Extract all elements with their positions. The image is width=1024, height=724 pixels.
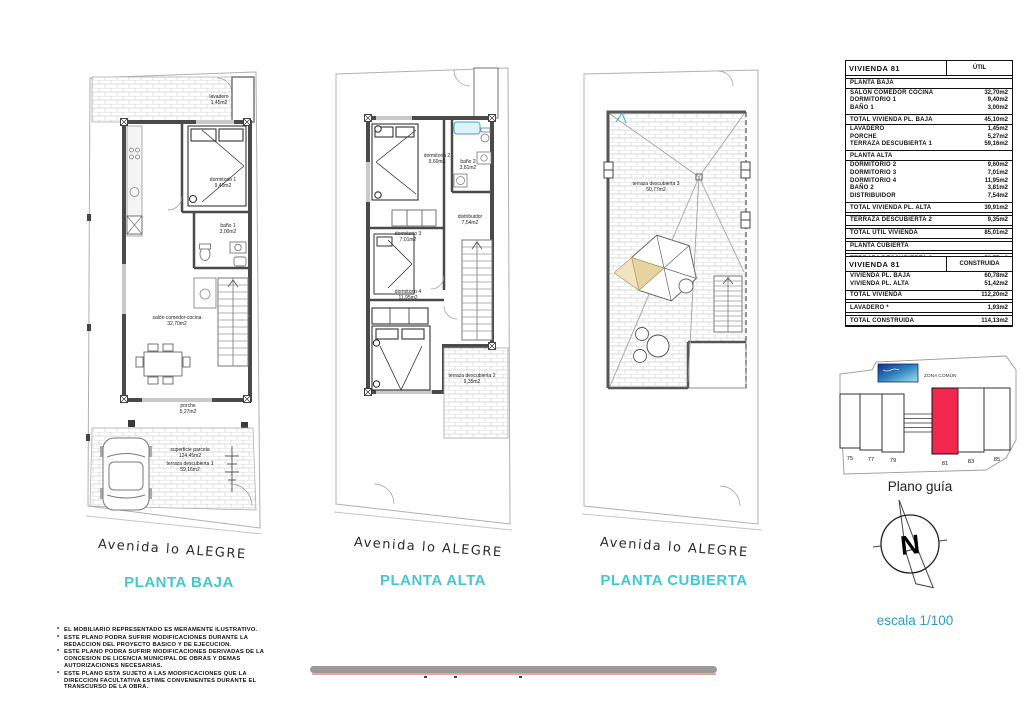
table-title: VIVIENDA 81: [846, 61, 946, 75]
room-label-dormitorio-4: dormitorio 4 11,95m2: [382, 290, 434, 301]
table-row: BAÑO 2 3,81m2: [846, 185, 1012, 193]
disclaimer-text: ESTE PLANO PODRA SUFRIR MODIFICACIONES D…: [64, 635, 271, 649]
row-label: VIVIENDA PL. ALTA: [850, 281, 909, 287]
row-value: 60,78m2: [984, 273, 1008, 279]
table-header: VIVIENDA 81 CONSTRUIDA: [846, 257, 1012, 272]
footer-mark: [454, 676, 457, 678]
footer-mark: [519, 676, 522, 678]
room-label-bano-2: baño 2 3,81m2: [446, 160, 490, 171]
row-label: TERRAZA DESCUBIERTA 2: [850, 217, 932, 223]
row-value: 59,16m2: [984, 141, 1008, 147]
disclaimer-text: ESTE PLANO PODRA SUFRIR MODIFICACIONES D…: [64, 649, 271, 669]
terrace-paving: [444, 348, 508, 438]
plot-81-highlight: [932, 388, 958, 454]
row-value: 112,20m2: [981, 292, 1008, 298]
table-row: PLANTA ALTA: [846, 150, 1012, 161]
table-body: VIVIENDA PL. BAJA 60,78m2 VIVIENDA PL. A…: [846, 272, 1012, 326]
plot-number: 85: [994, 457, 1000, 463]
street-label-alta: Avenida lo ALEGRE: [353, 535, 503, 560]
floor-plan-alta: dormitorio 2 9,60m2 baño 2 3,81m2 dormit…: [332, 62, 512, 532]
floor-plan-cubierta-drawing: [580, 62, 762, 532]
floor-title-alta: PLANTA ALTA: [348, 572, 518, 589]
row-label: PLANTA CUBIERTA: [850, 243, 909, 249]
plot-number: 79: [890, 458, 896, 464]
area-table-construida: VIVIENDA 81 CONSTRUIDA VIVIENDA PL. BAJA…: [845, 256, 1013, 327]
compass: N: [872, 500, 948, 598]
page: lavadero 1,45m2 dormitorio 1 9,40m2 baño…: [0, 0, 1024, 724]
row-label: DORMITORIO 4: [850, 178, 896, 184]
room-area: 11,95m2: [382, 296, 434, 302]
table-row: LAVADERO 1,45m2: [846, 125, 1012, 133]
row-value: 1,93m2: [988, 305, 1008, 311]
floor-title-cubierta: PLANTA CUBIERTA: [578, 572, 770, 589]
table-row: DORMITORIO 4 11,95m2: [846, 177, 1012, 185]
plot-85: [984, 388, 1010, 450]
row-label: PLANTA BAJA: [850, 80, 894, 86]
stairs-icon: [462, 240, 492, 340]
compass-north-letter: N: [899, 529, 922, 561]
row-value: 9,60m2: [988, 162, 1008, 168]
car-icon: [100, 438, 152, 510]
room-area: 59,16m2: [160, 468, 220, 474]
row-value: 85,01m2: [984, 230, 1008, 236]
room-label-lavadero: lavadero 1,45m2: [197, 95, 241, 106]
row-label: TOTAL VIVIENDA: [850, 292, 902, 298]
room-area: 124,45m2: [160, 454, 220, 460]
plot-group-left: [840, 394, 904, 452]
porch-column: [128, 420, 135, 427]
table-row: BAÑO 1 3,00m2: [846, 104, 1012, 112]
fence-post: [87, 214, 91, 221]
row-value: 9,35m2: [988, 217, 1008, 223]
footer-mark: [424, 676, 427, 678]
room-label-salon: salón comedor-cocina 32,70m2: [146, 316, 208, 327]
zona-comun-label: ZONA COMÚN: [924, 372, 957, 379]
plot-83: [958, 388, 984, 452]
room-label-porche: porche 5,27m2: [168, 404, 208, 415]
roof-notch: [688, 342, 746, 388]
table-column-header: ÚTIL: [946, 61, 1012, 75]
room-label-dormitorio-1: dormitorio 1 9,40m2: [197, 178, 249, 189]
bullet: *: [57, 635, 61, 649]
room-label-terraza-1: terraza descubierta 1 59,16m2: [160, 462, 220, 473]
table-row: TOTAL VIVIENDA PL. BAJA 45,10m2: [846, 114, 1012, 125]
row-value: 5,27m2: [988, 134, 1008, 140]
row-label: TOTAL CONSTRUIDA: [850, 318, 914, 324]
table-row: PLANTA BAJA: [846, 78, 1012, 89]
row-label: DORMITORIO 1: [850, 97, 896, 103]
room-area: 9,40m2: [197, 184, 249, 190]
bed-icon: [188, 126, 246, 206]
row-label: BAÑO 2: [850, 185, 874, 191]
room-area: 32,70m2: [146, 322, 208, 328]
row-label: TERRAZA DESCUBIERTA 1: [850, 141, 932, 147]
plot-number: 83: [968, 459, 974, 465]
row-value: 51,42m2: [984, 281, 1008, 287]
table-row: TOTAL VIVIENDA 112,20m2: [846, 290, 1012, 301]
table-row: VIVIENDA PL. ALTA 51,42m2: [846, 280, 1012, 288]
room-area: 1,45m2: [197, 101, 241, 107]
bullet: *: [57, 627, 61, 634]
room-area: 9,35m2: [444, 380, 500, 386]
compass-icon: N: [872, 500, 948, 598]
room-area: 50,77m2: [625, 188, 687, 194]
table-header: VIVIENDA 81 ÚTIL: [846, 61, 1012, 76]
area-table-util: VIVIENDA 81 ÚTIL PLANTA BAJA SALÓN COMED…: [845, 60, 1013, 278]
disclaimer-text: ESTE PLANO ESTA SUJETO A LAS MODIFICACIO…: [64, 671, 271, 691]
table-row: TERRAZA DESCUBIERTA 2 9,35m2: [846, 215, 1012, 226]
table-row: TOTAL VIVIENDA PL. ALTA 39,91m2: [846, 202, 1012, 213]
plot-number: 77: [868, 457, 874, 463]
room-area: 7,54m2: [444, 221, 496, 227]
stairs-icon: [218, 278, 248, 366]
pool-icon: [878, 364, 918, 382]
disclaimer-text: EL MOBILIARIO REPRESENTADO ES MERAMENTE …: [64, 627, 257, 634]
disclaimer-item: * ESTE PLANO ESTA SUJETO A LAS MODIFICAC…: [57, 671, 271, 691]
room-label-terraza-3: terraza descubierta 3 50,77m2: [625, 182, 687, 193]
street-label-cubierta: Avenida lo ALEGRE: [599, 535, 749, 560]
room-label-bano-1: baño 1 3,00m2: [204, 224, 252, 235]
table-row: PLANTA CUBIERTA: [846, 241, 1012, 252]
row-value: 11,95m2: [985, 178, 1008, 184]
row-value: 3,81m2: [988, 185, 1008, 191]
room-area: 3,00m2: [204, 230, 252, 236]
room-label-dormitorio-3: dormitorio 3 7,01m2: [382, 232, 434, 243]
table-row: DORMITORIO 3 7,01m2: [846, 169, 1012, 177]
room-label-parcela: superficie parcela 124,45m2: [160, 448, 220, 459]
stairwell-room: [474, 68, 498, 118]
row-value: 7,01m2: [988, 170, 1008, 176]
row-value: 114,13m2: [981, 318, 1008, 324]
street-label-baja: Avenida lo ALEGRE: [97, 537, 247, 562]
row-label: LAVADERO: [850, 126, 884, 132]
kitchen-icon: [127, 126, 142, 236]
disclaimer-item: * EL MOBILIARIO REPRESENTADO ES MERAMENT…: [57, 627, 271, 634]
row-label: BAÑO 1: [850, 105, 874, 111]
plot-number: 81: [942, 461, 948, 467]
table-row: DISTRIBUIDOR 7,54m2: [846, 192, 1012, 200]
row-label: PLANTA ALTA: [850, 153, 892, 159]
room-area: 3,81m2: [446, 166, 490, 172]
bed-icon: [372, 308, 430, 390]
plot-number: 75: [847, 456, 853, 462]
row-label: DISTRIBUIDOR: [850, 193, 896, 199]
table-title: VIVIENDA 81: [846, 257, 946, 271]
table-row: TERRAZA DESCUBIERTA 1 59,16m2: [846, 141, 1012, 149]
table-row: LAVADERO * 1,93m2: [846, 302, 1012, 313]
row-value: 39,91m2: [984, 205, 1008, 211]
table-row: PORCHE 5,27m2: [846, 133, 1012, 141]
table-row: DORMITORIO 2 9,60m2: [846, 161, 1012, 169]
row-label: PORCHE: [850, 134, 877, 140]
room-area: 7,01m2: [382, 238, 434, 244]
room-label-terraza-2: terraza descubierta 2 9,35m2: [444, 374, 500, 385]
table-body: PLANTA BAJA SALÓN COMEDOR COCINA 32,70m2…: [846, 78, 1012, 277]
floor-plan-baja: lavadero 1,45m2 dormitorio 1 9,40m2 baño…: [84, 64, 262, 534]
row-label: VIVIENDA PL. BAJA: [850, 273, 911, 279]
table-row: TOTAL ÚTIL VIVIENDA 85,01m2: [846, 228, 1012, 239]
disclaimer-list: * EL MOBILIARIO REPRESENTADO ES MERAMENT…: [57, 627, 271, 692]
row-label: SALÓN COMEDOR COCINA: [850, 90, 933, 96]
scale-label: escala 1/100: [850, 613, 980, 628]
plano-guia: ZONA COMÚN 75 77 79 81 83 85: [838, 354, 1018, 478]
row-value: 32,70m2: [984, 90, 1008, 96]
table-row: VIVIENDA PL. BAJA 60,78m2: [846, 272, 1012, 280]
footer-bar-underline: [312, 673, 716, 675]
site-map: ZONA COMÚN 75 77 79 81 83 85: [838, 354, 1018, 478]
room-area: 5,27m2: [168, 410, 208, 416]
stairs-icon: [714, 276, 742, 332]
row-label: DORMITORIO 2: [850, 162, 896, 168]
disclaimer-item: * ESTE PLANO PODRA SUFRIR MODIFICACIONES…: [57, 635, 271, 649]
row-label: TOTAL VIVIENDA PL. BAJA: [850, 117, 933, 123]
row-value: 9,40m2: [988, 97, 1008, 103]
row-label: TOTAL ÚTIL VIVIENDA: [850, 230, 918, 236]
row-label: DORMITORIO 3: [850, 170, 896, 176]
room-label-distribuidor: distribuidor 7,54m2: [444, 215, 496, 226]
table-column-header: CONSTRUIDA: [946, 257, 1012, 271]
row-label: TOTAL VIVIENDA PL. ALTA: [850, 205, 931, 211]
row-label: LAVADERO *: [850, 305, 889, 311]
plano-guia-label: Plano guía: [840, 479, 1000, 494]
floor-plan-cubierta: terraza descubierta 3 50,77m2: [580, 62, 762, 532]
footer-bar: [310, 666, 717, 673]
row-value: 45,10m2: [984, 117, 1008, 123]
table-row: SALÓN COMEDOR COCINA 32,70m2: [846, 89, 1012, 97]
disclaimer-item: * ESTE PLANO PODRA SUFRIR MODIFICACIONES…: [57, 649, 271, 669]
floor-title-baja: PLANTA BAJA: [94, 574, 264, 591]
bullet: *: [57, 649, 61, 669]
table-row: DORMITORIO 1 9,40m2: [846, 97, 1012, 105]
fence-post: [86, 434, 90, 441]
bullet: *: [57, 671, 61, 691]
row-value: 3,00m2: [988, 105, 1008, 111]
wc-icon: [194, 278, 216, 308]
row-value: 1,45m2: [988, 126, 1008, 132]
closet-icon: [392, 210, 436, 226]
table-row: TOTAL CONSTRUIDA 114,13m2: [846, 315, 1012, 326]
row-value: 7,54m2: [988, 193, 1008, 199]
fence-post: [87, 324, 91, 331]
